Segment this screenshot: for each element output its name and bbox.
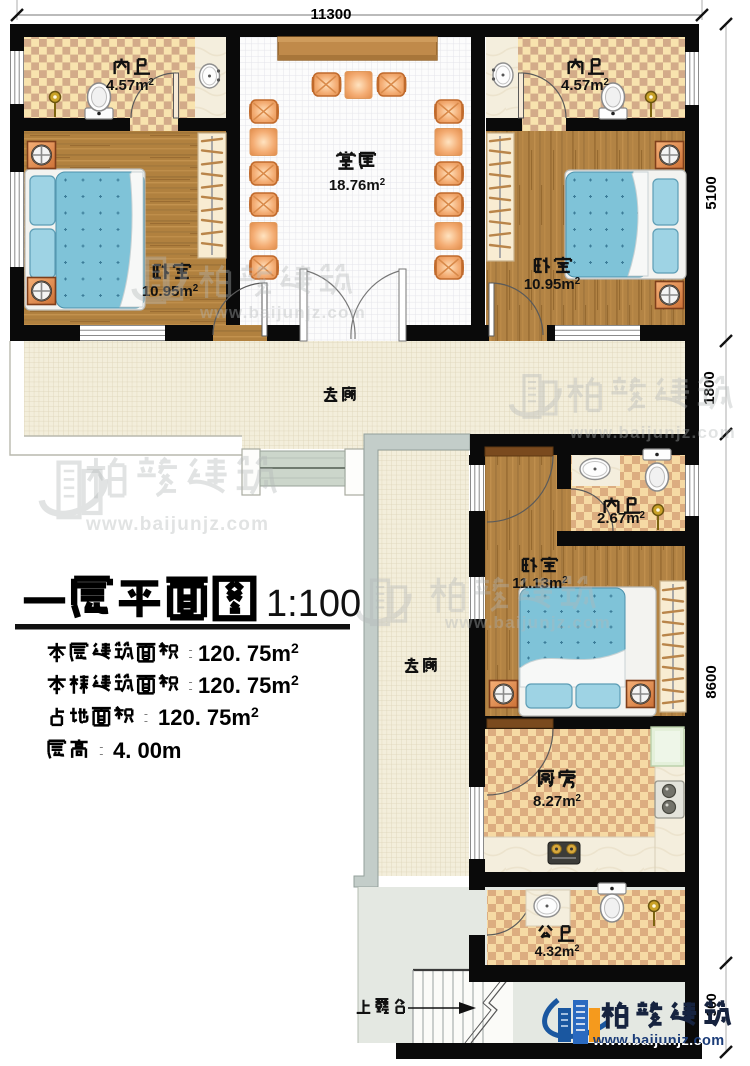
svg-text:11300: 11300: [311, 6, 352, 23]
svg-text:4.32m2: 4.32m2: [535, 943, 580, 959]
svg-text:www.baijunjz.com: www.baijunjz.com: [569, 423, 736, 442]
svg-text:120. 75m2: 120. 75m2: [158, 704, 259, 730]
svg-text:4.57m2: 4.57m2: [106, 77, 155, 94]
svg-text:2.67m2: 2.67m2: [597, 510, 646, 527]
svg-text:5100: 5100: [703, 176, 720, 209]
svg-text:120. 75m2: 120. 75m2: [198, 672, 299, 698]
svg-text:8.27m2: 8.27m2: [533, 793, 582, 810]
svg-text:4.57m2: 4.57m2: [561, 77, 610, 94]
svg-text:18.76m2: 18.76m2: [329, 177, 386, 194]
svg-text:1:100: 1:100: [266, 583, 361, 625]
svg-text:www.baijunjz.com: www.baijunjz.com: [444, 613, 611, 632]
svg-text:10.95m2: 10.95m2: [524, 276, 581, 293]
svg-text:4. 00m: 4. 00m: [113, 738, 182, 763]
svg-text:www.baijunjz.com: www.baijunjz.com: [199, 303, 366, 322]
svg-text:120. 75m2: 120. 75m2: [198, 640, 299, 666]
svg-text:8600: 8600: [703, 665, 720, 698]
svg-text:www.baijunjz.com: www.baijunjz.com: [85, 514, 269, 535]
